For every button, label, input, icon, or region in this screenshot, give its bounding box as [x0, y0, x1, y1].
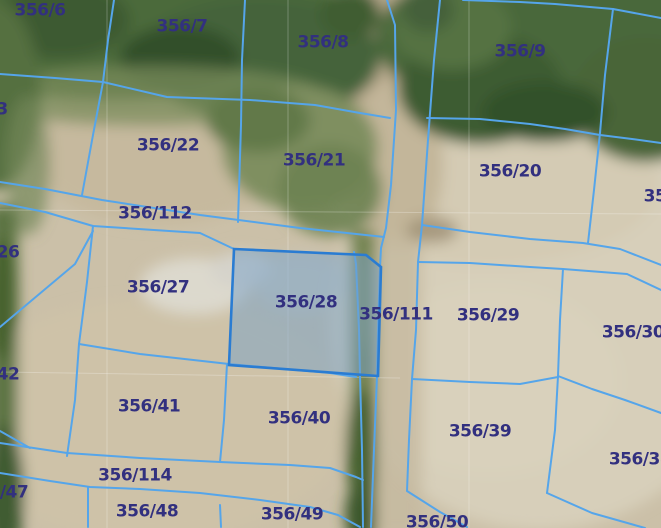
- highlighted-parcel-356-28[interactable]: [229, 249, 381, 376]
- aerial-basemap: [0, 0, 661, 528]
- map-viewport[interactable]: 356/6356/7356/8356/93356/22356/21356/203…: [0, 0, 661, 528]
